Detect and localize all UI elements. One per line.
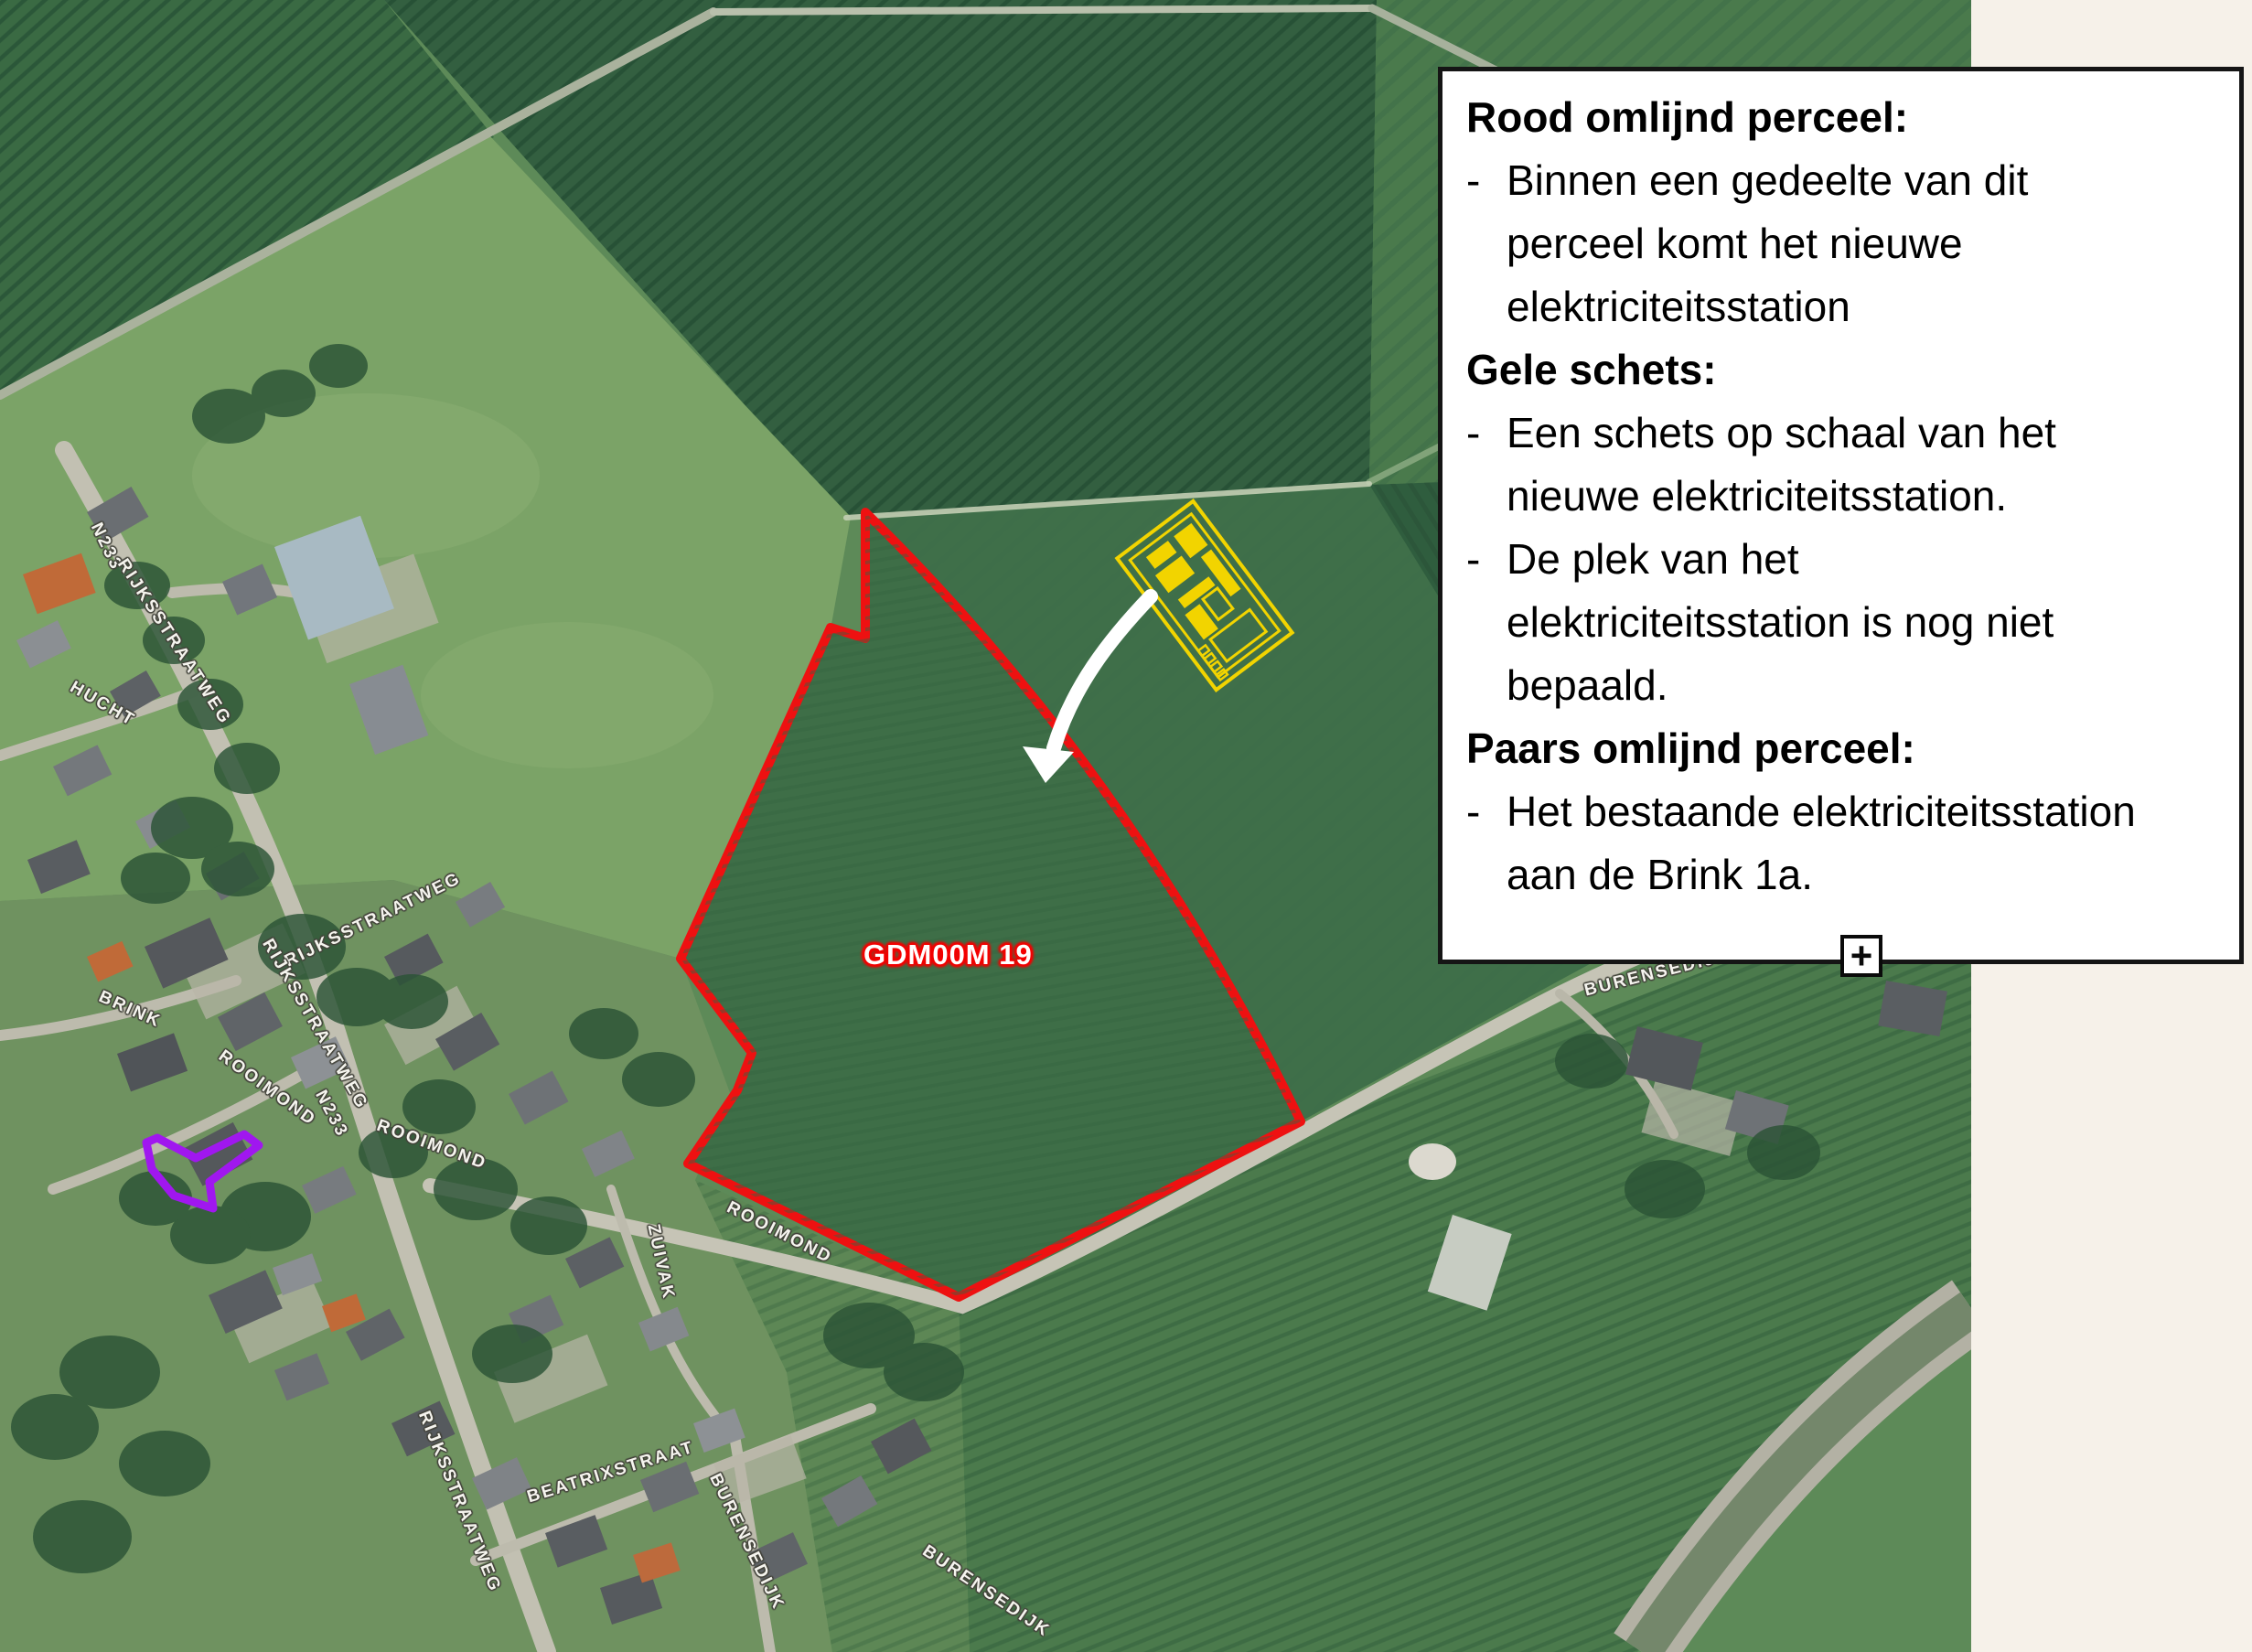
bullet-text: Het bestaande elektriciteitsstation aan … xyxy=(1507,780,2147,906)
bullet-dash: - xyxy=(1466,149,1507,212)
legend-heading: Gele schets: xyxy=(1466,338,2221,402)
plus-glyph: + xyxy=(1850,939,1873,972)
screenshot-root: N233RIJKSSTRAATWEGHUCHTRIJKSSTRAATWEGRIJ… xyxy=(0,0,2252,1652)
bullet-text: De plek van het elektriciteitsstation is… xyxy=(1507,528,2147,717)
legend-heading: Rood omlijnd perceel: xyxy=(1466,86,2221,149)
legend-box: Rood omlijnd perceel:-Binnen een gedeelt… xyxy=(1438,67,2244,964)
bullet-dash: - xyxy=(1466,780,1507,843)
legend-bullet: -De plek van het elektriciteitsstation i… xyxy=(1466,528,2221,717)
bullet-dash: - xyxy=(1466,402,1507,465)
bullet-text: Binnen een gedeelte van dit perceel komt… xyxy=(1507,149,2147,338)
legend-bullet: -Binnen een gedeelte van dit perceel kom… xyxy=(1466,149,2221,338)
bullet-dash: - xyxy=(1466,528,1507,591)
expand-plus-icon[interactable]: + xyxy=(1840,935,1882,977)
parcel-label: GDM00M 19 xyxy=(863,939,1033,971)
legend-bullet: -Een schets op schaal van het nieuwe ele… xyxy=(1466,402,2221,528)
legend-bullet: -Het bestaande elektriciteitsstation aan… xyxy=(1466,780,2221,906)
bullet-text: Een schets op schaal van het nieuwe elek… xyxy=(1507,402,2147,528)
legend-content: Rood omlijnd perceel:-Binnen een gedeelt… xyxy=(1466,86,2221,906)
legend-heading: Paars omlijnd perceel: xyxy=(1466,717,2221,780)
